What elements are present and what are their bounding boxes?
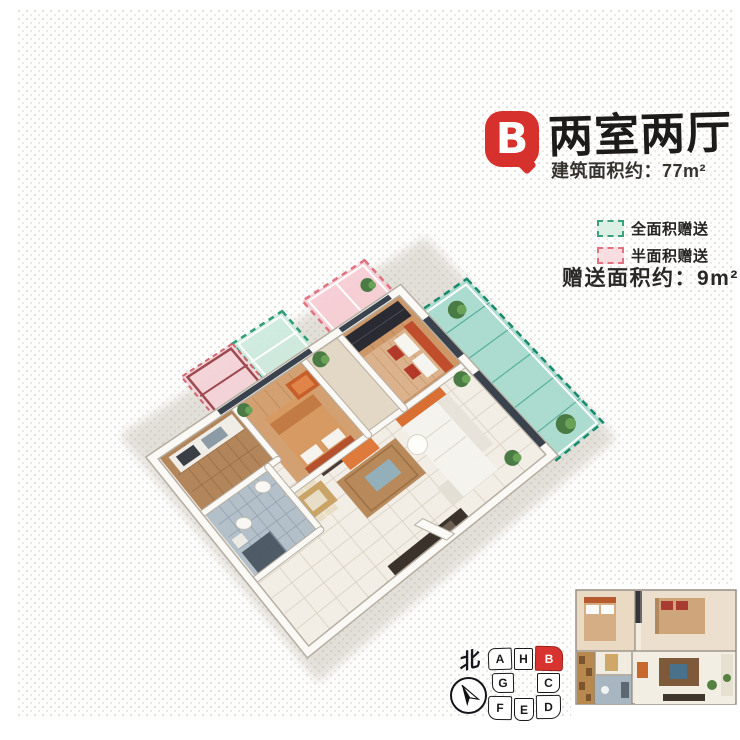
key-plan-unit-h: H <box>514 648 533 670</box>
unit-badge: B <box>485 111 539 167</box>
key-plan-unit-d: D <box>536 695 561 719</box>
key-plan-unit-a: A <box>488 648 513 671</box>
key-plan-unit-e: E <box>514 698 534 721</box>
key-plan-unit-c: C <box>537 673 560 693</box>
legend-label: 全面积赠送 <box>631 218 709 239</box>
page-subtitle: 建筑面积约：77m² <box>551 157 706 183</box>
gift-area-text: 赠送面积约：9m² <box>562 262 739 292</box>
poster: B 两室两厅 建筑面积约：77m² 全面积赠送半面积赠送 赠送面积约：9m² 北… <box>0 0 740 740</box>
north-arrow-icon <box>454 681 482 709</box>
building-key-plan: AHBGCFED <box>484 640 570 728</box>
key-plan-unit-g: G <box>492 673 514 693</box>
page-title: 两室两厅 <box>547 96 733 166</box>
mini-floor-plan-drawing <box>571 586 739 716</box>
key-plan-unit-b: B <box>535 646 563 671</box>
mini-floor-plan <box>571 586 739 716</box>
legend-item-full-area-gift: 全面积赠送 <box>597 218 709 239</box>
unit-badge-letter: B <box>485 111 539 167</box>
compass-dial <box>450 677 487 714</box>
legend-swatch-full-area-gift <box>597 220 624 237</box>
key-plan-unit-f: F <box>488 696 512 720</box>
